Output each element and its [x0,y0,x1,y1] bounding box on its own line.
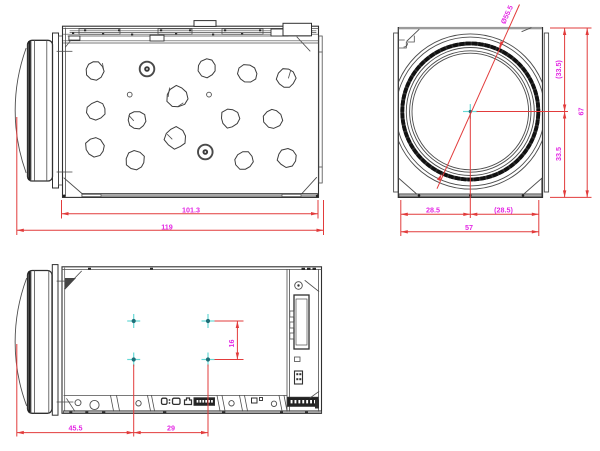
svg-text:Ø55.5: Ø55.5 [499,4,515,26]
svg-text:(33.5): (33.5) [554,60,563,79]
svg-text:(28.5): (28.5) [494,205,513,214]
svg-text:119: 119 [161,222,173,231]
svg-text:67: 67 [576,108,585,116]
svg-text:101.3: 101.3 [182,205,200,214]
svg-text:45.5: 45.5 [69,423,83,432]
svg-text:29: 29 [167,423,175,432]
svg-text:28.5: 28.5 [426,205,440,214]
svg-text:57: 57 [465,223,473,232]
svg-text:16: 16 [227,340,236,348]
svg-text:33.5: 33.5 [554,147,563,161]
